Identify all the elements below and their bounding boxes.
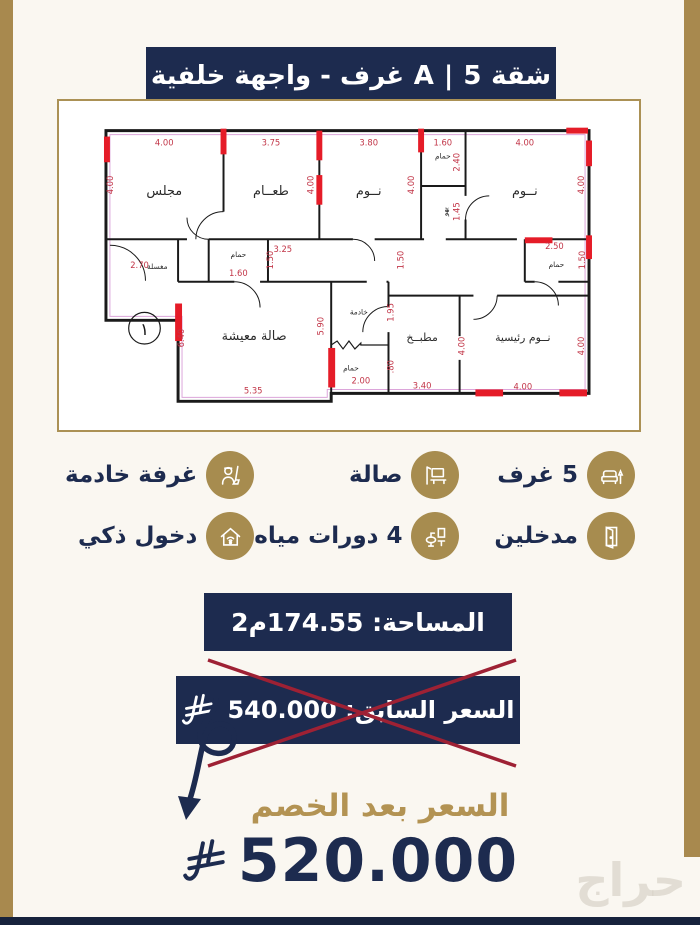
- saudi-riyal-symbol: [182, 836, 228, 886]
- dim-label: 4.00: [576, 176, 586, 195]
- features-grid: 5 غرف صالة غرفة خادمة مدخلين: [65, 450, 635, 561]
- feature-label: غرفة خادمة: [65, 462, 197, 488]
- dim-label: 4.00: [155, 137, 174, 147]
- feature-label: صالة: [349, 462, 402, 488]
- room-label-bedroom: نــوم: [356, 184, 382, 199]
- dim-label: 1.50: [395, 251, 405, 270]
- feature-entrances: مدخلين: [459, 511, 635, 561]
- feature-smart-entry: دخول ذكي: [65, 511, 254, 561]
- dim-label: 2.00: [352, 376, 371, 386]
- dim-label: 3.75: [262, 137, 281, 147]
- feature-label: دخول ذكي: [78, 523, 197, 549]
- dim-label: 3.25: [273, 244, 292, 254]
- right-gold-border: [684, 0, 700, 857]
- dim-label: 1.50: [577, 251, 587, 270]
- dim-label: 4.00: [514, 381, 533, 391]
- room-label-bedroom: نــوم: [512, 184, 538, 199]
- dim-label: 2.40: [452, 153, 462, 172]
- room-label-bath: حمام: [435, 151, 451, 160]
- door-icon: [587, 512, 635, 560]
- room-label-master: نــوم رئيسية: [495, 331, 551, 344]
- discount-label: السعر بعد الخصم: [180, 788, 580, 824]
- room-label-bath: حمام: [549, 260, 565, 269]
- dim-label: 5.35: [244, 385, 263, 395]
- header-banner: شقة A | 5 غرف - واجهة خلفية: [146, 47, 556, 104]
- bottom-navy-bar: [0, 917, 700, 925]
- feature-bathrooms: 4 دورات مياه: [254, 511, 459, 561]
- area-label: المساحة: 174.55م2: [231, 608, 485, 637]
- dim-label: 3.80: [359, 137, 378, 147]
- maid-icon: [206, 451, 254, 499]
- room-label-kitchen: مطبــخ: [406, 331, 437, 344]
- dim-label: 1.95: [385, 303, 395, 322]
- dim-label: 1.60: [229, 268, 248, 278]
- room-label-majlis: مجلس: [146, 184, 182, 199]
- feature-rooms: 5 غرف: [459, 450, 635, 500]
- smart-home-icon: [206, 512, 254, 560]
- tv-console-icon: [411, 451, 459, 499]
- dim-label: 1.50: [265, 251, 275, 270]
- area-banner: المساحة: 174.55م2: [204, 593, 512, 651]
- dim-label: 4.00: [576, 337, 586, 356]
- dim-label: 6.40: [176, 329, 186, 348]
- sofa-icon: [587, 451, 635, 499]
- bathroom-icon: [411, 512, 459, 560]
- plan-number: ١: [140, 319, 149, 339]
- dim-label: 4.00: [105, 176, 115, 195]
- dim-label: 1.60: [433, 137, 452, 147]
- floorplan-panel: 4.00 3.75 3.80 1.60 4.00 4.00 4.00 4.00 …: [57, 99, 641, 432]
- floorplan-drawing: 4.00 3.75 3.80 1.60 4.00 4.00 4.00 4.00 …: [59, 101, 635, 426]
- feature-maid-room: غرفة خادمة: [65, 450, 254, 500]
- dim-label: 5.90: [315, 317, 325, 336]
- room-label-living: صالة معيشة: [222, 329, 287, 344]
- dim-label: 4.00: [305, 176, 315, 195]
- page-title: شقة A | 5 غرف - واجهة خلفية: [151, 61, 551, 91]
- previous-price-label: السعر السابق: 540.000: [227, 696, 514, 724]
- room-label-bath: حمام: [231, 250, 247, 259]
- feature-label: 4 دورات مياه: [254, 523, 402, 549]
- dim-label: 3.40: [413, 380, 432, 390]
- room-label-lobby: بهو: [441, 207, 450, 217]
- left-gold-border: [0, 0, 13, 917]
- dim-label: .80: [385, 360, 395, 373]
- dim-label: 2.50: [545, 241, 564, 251]
- dim-label: 1.45: [452, 202, 462, 221]
- dim-label: 4.00: [406, 176, 416, 195]
- feature-label: 5 غرف: [497, 462, 578, 488]
- watermark: حراج: [575, 853, 686, 907]
- discounted-price: 520.000: [238, 826, 518, 896]
- dim-label: 4.00: [457, 337, 467, 356]
- room-label-bath: حمام: [343, 364, 359, 373]
- dim-label: 4.00: [515, 137, 534, 147]
- feature-hall: صالة: [254, 450, 459, 500]
- room-label-wash: مغسلة: [147, 262, 168, 271]
- room-label-dining: طعــام: [253, 184, 289, 199]
- room-label-maid: خادمة: [350, 307, 368, 316]
- feature-label: مدخلين: [494, 523, 578, 549]
